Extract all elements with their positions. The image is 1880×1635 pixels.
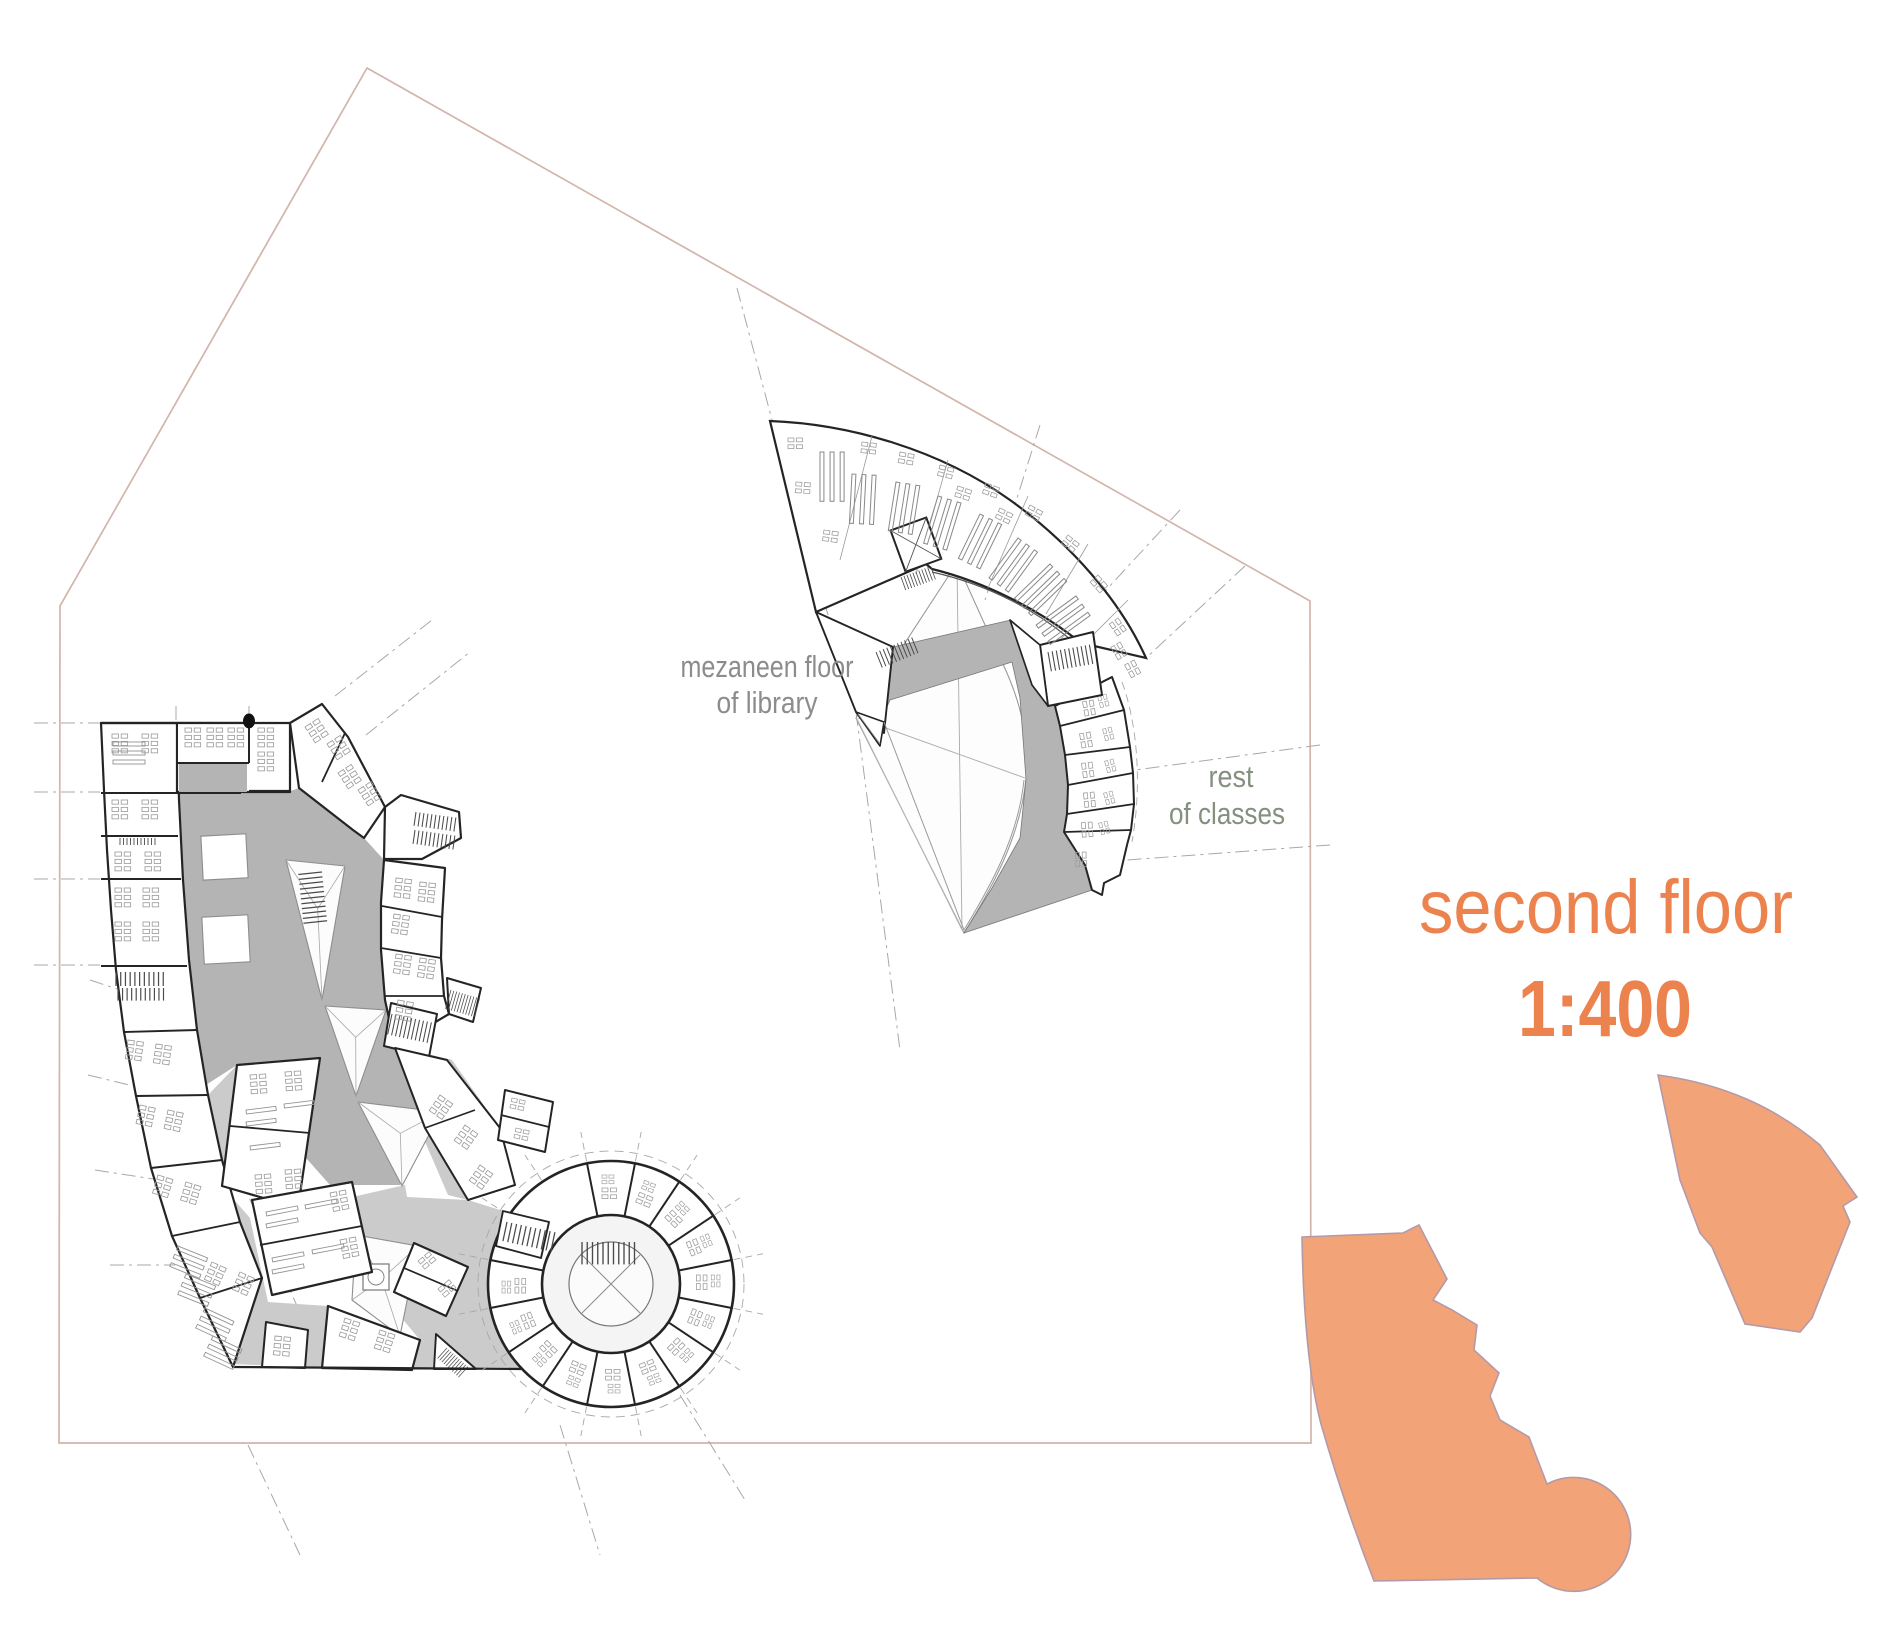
svg-text:mezaneen floor: mezaneen floor <box>681 649 854 684</box>
svg-text:1:400: 1:400 <box>1518 964 1692 1053</box>
svg-text:second floor: second floor <box>1419 865 1793 950</box>
svg-text:of classes: of classes <box>1169 796 1285 831</box>
svg-text:of library: of library <box>717 685 818 720</box>
svg-text:rest: rest <box>1209 759 1254 794</box>
